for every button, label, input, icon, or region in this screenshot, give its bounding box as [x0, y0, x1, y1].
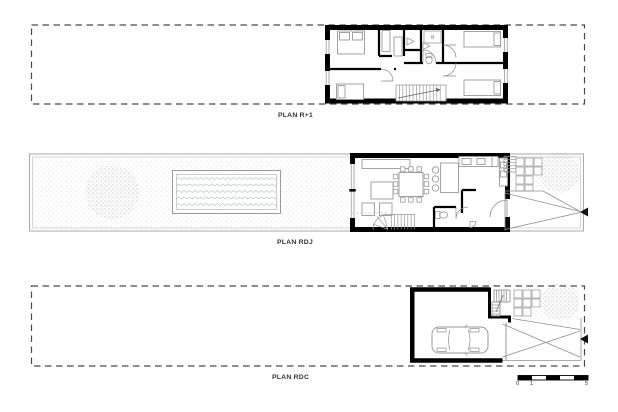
plan-r1-label: PLAN R+1	[278, 112, 313, 119]
plan-r1	[32, 25, 585, 104]
scale-bar	[518, 376, 588, 381]
tall-cabinet	[492, 157, 498, 167]
tree-garden	[85, 165, 139, 219]
plan-rdc-label: PLAN RDC	[272, 374, 309, 381]
staircase-rdc	[492, 290, 510, 316]
swimming-pool	[173, 171, 281, 214]
kitchen-island	[441, 163, 459, 193]
tree-front-yard-rdj	[540, 153, 580, 193]
plan-rdj	[30, 153, 589, 231]
coffee-table	[371, 182, 393, 199]
tree-front-yard-rdc	[541, 283, 579, 321]
plans-drawing	[0, 0, 618, 412]
bar-stool	[432, 176, 438, 182]
kitchen-sink	[462, 159, 471, 165]
scale-tick-5: 5	[585, 381, 588, 387]
staircase-r1	[396, 85, 446, 101]
bar-stool	[432, 185, 438, 191]
plan-rdj-label: PLAN RDJ	[277, 239, 313, 246]
bed-double	[338, 31, 365, 54]
car	[432, 325, 488, 356]
bed-single-bottom-right	[464, 80, 501, 96]
glazed-facade	[349, 164, 355, 218]
dining-table	[393, 167, 428, 202]
scale-tick-0: 0	[516, 381, 519, 387]
driveway-rdj	[505, 191, 580, 231]
bed-single-bottom-left	[337, 84, 364, 100]
floor-plans-sheet: PLAN R+1 PLAN RDJ PLAN RDC 0 1 5	[0, 0, 618, 412]
plan-rdc	[32, 283, 589, 366]
scale-tick-1: 1	[530, 381, 533, 387]
bar-stool	[432, 167, 438, 173]
cooktop	[477, 159, 485, 165]
bed-single-top-right	[464, 32, 501, 48]
driveway-rdc	[503, 318, 582, 361]
